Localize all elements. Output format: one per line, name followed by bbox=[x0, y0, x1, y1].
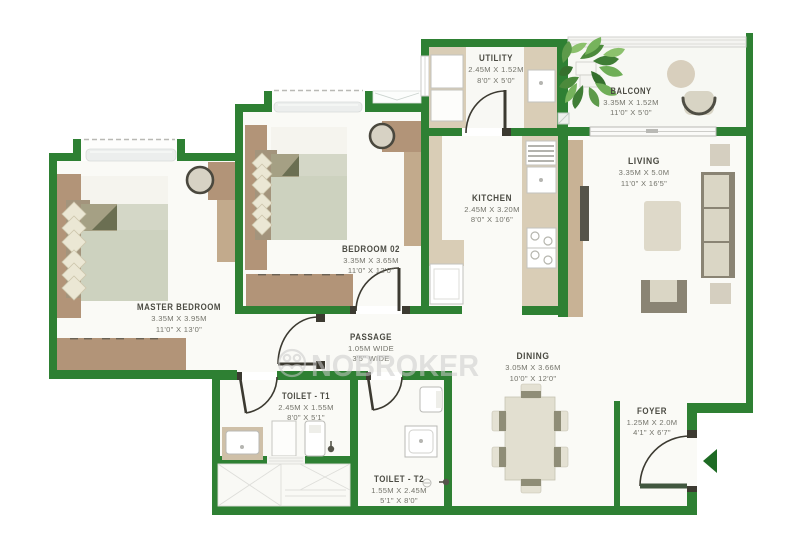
svg-text:11'0" X 16'5": 11'0" X 16'5" bbox=[621, 179, 667, 188]
svg-text:3.35M X 1.52M: 3.35M X 1.52M bbox=[603, 98, 658, 107]
svg-text:1.25M X 2.0M: 1.25M X 2.0M bbox=[627, 418, 678, 427]
svg-text:2.45M X 1.52M: 2.45M X 1.52M bbox=[468, 65, 523, 74]
svg-text:MASTER BEDROOM: MASTER BEDROOM bbox=[137, 302, 221, 312]
svg-text:LIVING: LIVING bbox=[628, 156, 660, 166]
svg-text:2.45M X 1.55M: 2.45M X 1.55M bbox=[278, 403, 333, 412]
svg-text:8'0" X 5'0": 8'0" X 5'0" bbox=[477, 76, 515, 85]
svg-text:NOBROKER: NOBROKER bbox=[311, 348, 479, 383]
svg-text:3.35M X 5.0M: 3.35M X 5.0M bbox=[619, 168, 670, 177]
svg-text:3.35M X 3.95M: 3.35M X 3.95M bbox=[151, 314, 206, 323]
svg-text:TOILET - T2: TOILET - T2 bbox=[374, 474, 424, 484]
svg-text:2.45M X 3.20M: 2.45M X 3.20M bbox=[464, 205, 519, 214]
svg-text:5'1" X 8'0": 5'1" X 8'0" bbox=[380, 496, 418, 505]
svg-text:DINING: DINING bbox=[517, 351, 550, 361]
svg-text:8'0" X 10'6": 8'0" X 10'6" bbox=[471, 215, 513, 224]
svg-text:BALCONY: BALCONY bbox=[611, 86, 652, 96]
svg-text:4'1" X 6'7": 4'1" X 6'7" bbox=[633, 428, 671, 437]
svg-text:8'0" X 5'1": 8'0" X 5'1" bbox=[287, 413, 325, 422]
svg-text:11'0" X 5'0": 11'0" X 5'0" bbox=[610, 108, 652, 117]
svg-text:1.55M X 2.45M: 1.55M X 2.45M bbox=[371, 486, 426, 495]
svg-text:UTILITY: UTILITY bbox=[479, 53, 513, 63]
svg-text:11'0" X 13'0": 11'0" X 13'0" bbox=[156, 325, 202, 334]
svg-text:KITCHEN: KITCHEN bbox=[472, 193, 512, 203]
svg-text:3.05M X 3.66M: 3.05M X 3.66M bbox=[505, 363, 560, 372]
svg-text:TOILET - T1: TOILET - T1 bbox=[282, 391, 330, 401]
svg-text:BEDROOM 02: BEDROOM 02 bbox=[342, 244, 400, 254]
svg-text:3.35M X 3.65M: 3.35M X 3.65M bbox=[343, 256, 398, 265]
svg-text:PASSAGE: PASSAGE bbox=[350, 332, 392, 342]
svg-text:10'0" X 12'0": 10'0" X 12'0" bbox=[510, 374, 557, 383]
svg-text:FOYER: FOYER bbox=[637, 406, 667, 416]
svg-text:11'0" X 12'0": 11'0" X 12'0" bbox=[348, 266, 394, 275]
